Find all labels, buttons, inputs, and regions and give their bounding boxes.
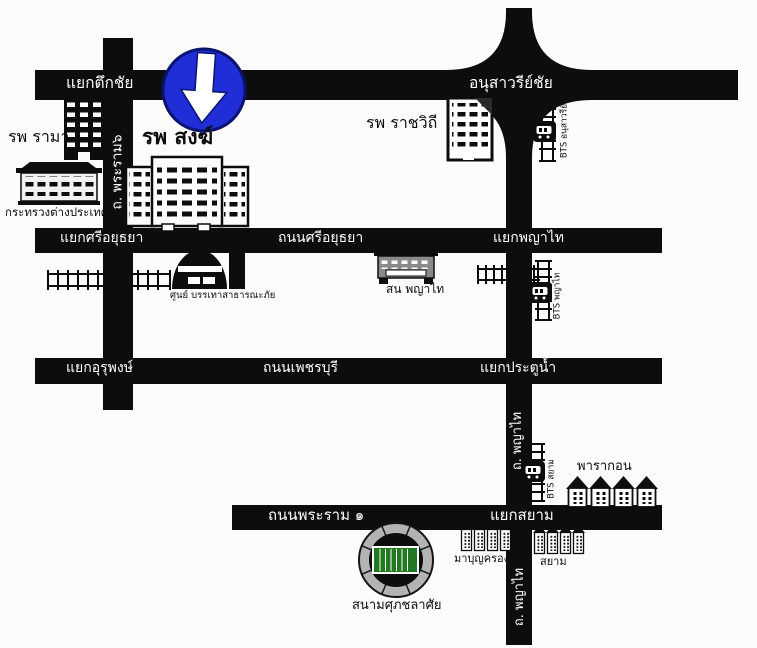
label-phayathai-police: สน พญาไท (386, 283, 444, 296)
label-phaya-thai-intersection: แยกพญาไท (493, 231, 564, 246)
label-bts-siam: BTS สยาม (547, 459, 556, 499)
label-siam-intersection: แยกสยาม (490, 507, 554, 524)
label-rama6-road: ถ. พระราม๖ (110, 134, 125, 209)
label-mbk: มาบุญครอง (454, 553, 509, 565)
label-bts-phayathai: BTS พญาไท (553, 273, 562, 320)
building-phayathai-police (374, 246, 438, 284)
label-relief-center: ศูนย์ บรรเทาสาธารณะภัย (170, 291, 275, 301)
label-si-ayutthaya-road: ถนนศรีอยุธยา (278, 231, 363, 246)
label-pratunam-intersection: แยกประตูน้ำ (480, 361, 556, 376)
label-paragon: พารากอน (577, 460, 632, 474)
railway-crossing-icon (48, 270, 170, 290)
label-phayathai-road-lower: ถ. พญาไท (513, 568, 527, 626)
blue-down-arrow-sign-icon (160, 46, 248, 134)
road-top-horizontal (35, 70, 738, 100)
label-siam: สยาม (540, 556, 567, 568)
label-rama1-road: ถนนพระราม ๑ (268, 507, 364, 524)
label-urupong-intersection: แยกอุรุพงษ์ (66, 361, 133, 376)
label-rama-hospital: รพ รามา (8, 128, 69, 146)
label-victory-monument: อนุสาวรีย์ชัย (469, 75, 553, 92)
label-supachalasai-stadium: สนามศุภชลาศัย (352, 599, 441, 613)
label-si-ayutthaya-intersection: แยกศรีอยุธยา (60, 231, 143, 246)
label-phayathai-road-upper: ถ. พญาไท (511, 412, 525, 470)
map-canvas: แยกตึกชัย อนุสาวรีย์ชัย รพ รามา รพ สงฆ์ … (0, 0, 757, 648)
building-foreign-ministry (16, 162, 102, 205)
label-phetchaburi-road: ถนนเพชรบุรี (263, 361, 338, 376)
building-rama-hospital (64, 94, 106, 160)
label-tuek-chai-intersection: แยกตึกชัย (66, 75, 134, 92)
shops-paragon (566, 476, 658, 507)
building-relief-center (172, 250, 245, 289)
stadium-icon (359, 523, 433, 597)
building-song-hospital (126, 157, 248, 231)
label-rajavithi-hospital: รพ ราชวิถี (366, 114, 437, 132)
map-graphics (0, 0, 757, 648)
label-foreign-ministry: กระทรวงต่างประเทศ (5, 206, 108, 219)
label-bts-victory: BTS อนุสาวรีย์ (560, 104, 569, 158)
building-rajavithi-hospital (448, 98, 492, 160)
label-song-hospital: รพ สงฆ์ (142, 126, 213, 149)
